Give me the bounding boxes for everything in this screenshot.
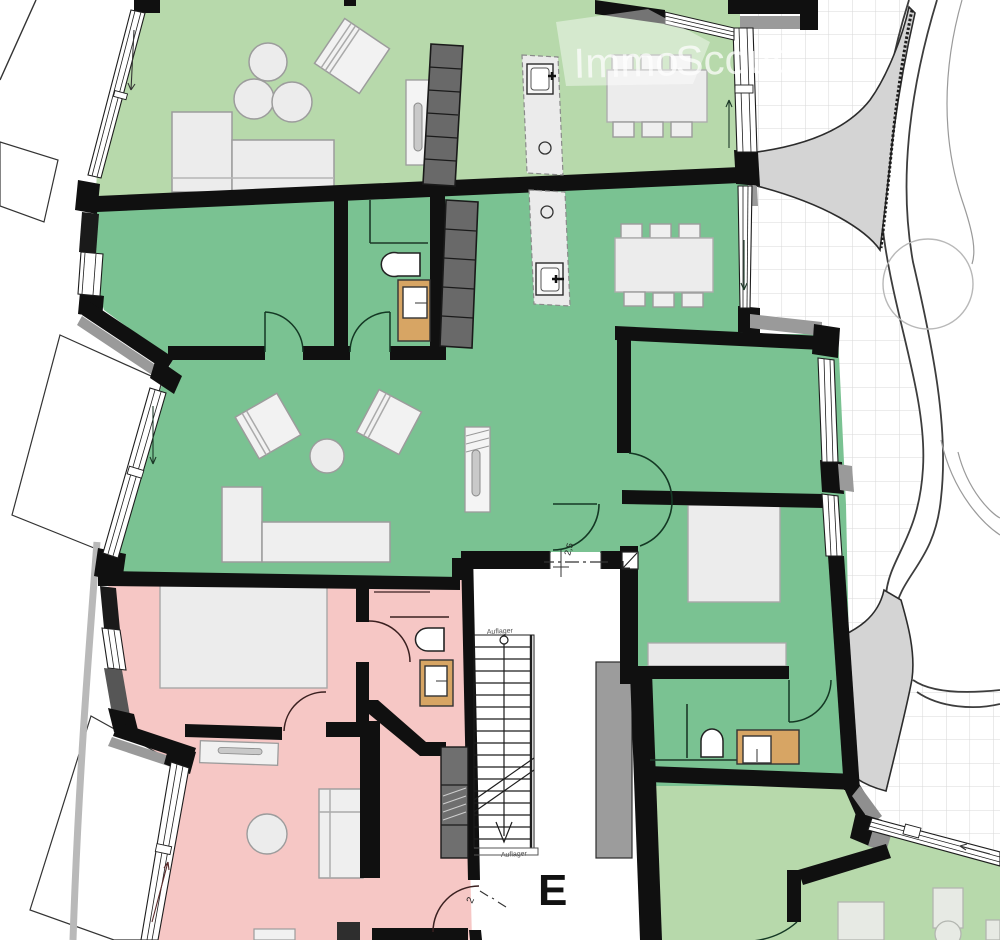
svg-text:Scout: Scout xyxy=(675,34,784,84)
svg-text:E: E xyxy=(538,866,567,915)
svg-text:Immo: Immo xyxy=(573,37,679,87)
svg-text:Auflager: Auflager xyxy=(487,628,514,636)
